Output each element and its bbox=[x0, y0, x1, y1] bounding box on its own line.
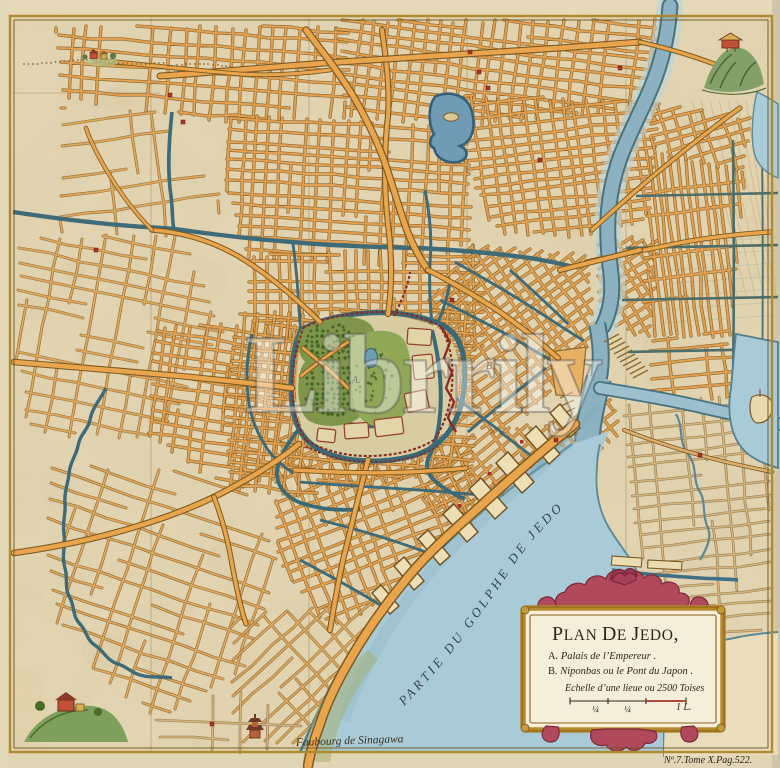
svg-text:A. Palais de l’Empereur .: A. Palais de l’Empereur . bbox=[548, 651, 656, 662]
svg-text:¼: ¼ bbox=[624, 704, 631, 714]
svg-text:Echelle d’une lieue ou 2500 To: Echelle d’une lieue ou 2500 Toises bbox=[564, 683, 704, 694]
svg-text:Librrily: Librrily bbox=[245, 313, 602, 437]
svg-text:Nº.7.Tome X.Pag.522.: Nº.7.Tome X.Pag.522. bbox=[663, 755, 752, 766]
svg-text:1 L.: 1 L. bbox=[676, 702, 692, 713]
svg-text:B. Niponbas ou le Pont du Japo: B. Niponbas ou le Pont du Japon . bbox=[548, 666, 693, 677]
svg-text:¼: ¼ bbox=[592, 704, 599, 714]
svg-text:PLAN DE JEDO,: PLAN DE JEDO, bbox=[552, 623, 679, 645]
